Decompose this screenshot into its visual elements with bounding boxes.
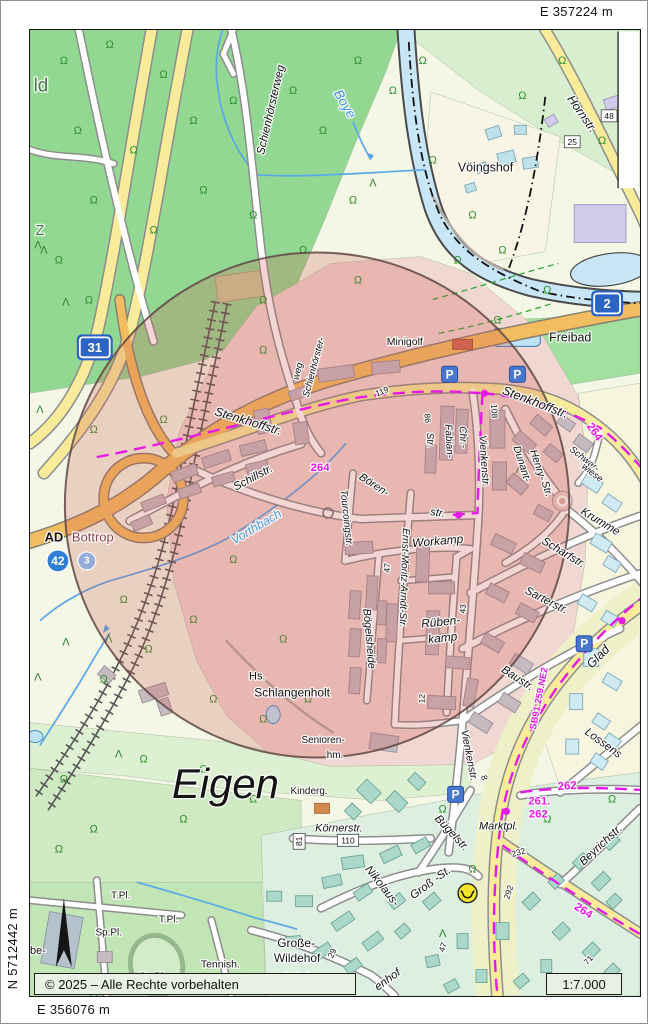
svg-text:261.: 261.	[528, 795, 550, 807]
svg-text:Minigolf: Minigolf	[387, 337, 423, 348]
map-label-minigolf: Minigolf	[387, 337, 423, 348]
map-label-12: 12	[416, 693, 426, 703]
building	[425, 954, 440, 967]
map-label-gro-e: Große-	[277, 936, 315, 950]
tree-symbol: Ω	[74, 125, 82, 137]
building	[566, 739, 579, 754]
building	[574, 205, 626, 243]
conifer-symbol: Λ	[62, 296, 70, 308]
tree-symbol: Ω	[55, 843, 63, 855]
svg-text:T.Pl.: T.Pl.	[159, 915, 178, 926]
map-canvas: ΩΩΩΩΩΩΩΩΩΩΩΩΩΩΩΩΩΩΩΩΩΩΩΩΩΩΩΩΩΩΩΩΩΩΩΩΩΩΩΩ…	[30, 30, 640, 996]
svg-text:P: P	[580, 637, 588, 651]
svg-text:42: 42	[51, 554, 65, 568]
tree-symbol: Ω	[149, 225, 157, 237]
scale-box: 1:7.000	[546, 973, 622, 995]
map-label-hm: hm.	[327, 750, 344, 761]
map-label-t-pl: T.Pl.	[111, 891, 130, 902]
tree-symbol: Ω	[189, 115, 197, 127]
tree-symbol: Ω	[389, 85, 397, 97]
map-label-wildehof: Wildehof	[274, 951, 321, 965]
building	[267, 891, 282, 901]
tree-symbol: Ω	[100, 674, 108, 686]
tree-symbol: Ω	[106, 39, 114, 51]
map-label-senioren: Senioren-	[301, 735, 344, 746]
building	[570, 694, 583, 710]
svg-text:262: 262	[529, 808, 548, 820]
building	[296, 896, 313, 907]
building	[496, 923, 509, 940]
svg-text:43: 43	[457, 604, 467, 614]
tree-symbol: Ω	[429, 155, 437, 167]
svg-text:hm.: hm.	[327, 750, 344, 761]
map-label-schlangenholt: Schlangenholt	[254, 686, 330, 700]
tree-symbol: Ω	[229, 95, 237, 107]
svg-text:AD: AD	[45, 529, 64, 544]
svg-text:2: 2	[604, 296, 611, 311]
map-label-k-rnerstr: Körnerstr.	[315, 822, 363, 834]
coordinate-top-easting: E 357224 m	[540, 4, 613, 19]
svg-text:31: 31	[88, 340, 102, 355]
map-label-be: be-	[30, 945, 46, 957]
tree-symbol: Ω	[453, 255, 461, 267]
svg-text:262: 262	[557, 780, 577, 793]
conifer-symbol: Λ	[439, 928, 447, 940]
map-label-str: Str.	[424, 432, 436, 448]
map-label-25: 25	[564, 136, 580, 148]
tree-symbol: Ω	[419, 55, 427, 67]
svg-text:Marktpl.: Marktpl.	[479, 820, 518, 832]
svg-text:108: 108	[489, 404, 500, 419]
map-label-262: 262	[557, 780, 577, 793]
tree-symbol: Ω	[319, 125, 327, 137]
svg-text:12: 12	[416, 693, 426, 703]
tree-symbol: Ω	[199, 185, 207, 197]
pond	[30, 731, 43, 743]
svg-text:Eigen: Eigen	[172, 760, 279, 807]
svg-text:Fabian-: Fabian-	[442, 424, 455, 459]
building	[457, 934, 468, 949]
building	[476, 970, 487, 983]
svg-text:Sp.Pl.: Sp.Pl.	[95, 928, 122, 939]
svg-text:P: P	[446, 367, 454, 381]
parking-icon: P	[442, 366, 458, 382]
svg-text:81: 81	[294, 836, 304, 846]
svg-text:48: 48	[604, 111, 614, 121]
coordinate-bottom-easting: E 356076 m	[37, 1002, 110, 1017]
svg-text:Wildehof: Wildehof	[274, 951, 321, 965]
tree-symbol: Ω	[498, 245, 506, 257]
svg-text:Tennish.: Tennish.	[201, 960, 240, 971]
tree-symbol: Ω	[468, 863, 476, 875]
svg-text:86: 86	[422, 413, 432, 423]
map-frame: ΩΩΩΩΩΩΩΩΩΩΩΩΩΩΩΩΩΩΩΩΩΩΩΩΩΩΩΩΩΩΩΩΩΩΩΩΩΩΩΩ…	[29, 29, 641, 997]
map-label-262: 262	[529, 808, 548, 820]
svg-text:Freibad: Freibad	[549, 330, 591, 344]
svg-text:T.Pl.: T.Pl.	[111, 891, 130, 902]
svg-text:str.: str.	[429, 506, 445, 520]
svg-text:Str.: Str.	[424, 432, 436, 448]
svg-text:3: 3	[84, 555, 90, 566]
parking-icon: P	[576, 636, 592, 652]
conifer-symbol: Λ	[34, 672, 42, 684]
map-label-freibad: Freibad	[549, 330, 591, 344]
svg-text:be-: be-	[30, 945, 46, 957]
tree-symbol: Ω	[249, 210, 257, 222]
conifer-symbol: Λ	[369, 178, 377, 190]
svg-text:Körnerstr.: Körnerstr.	[315, 822, 363, 834]
map-label-ld: ld	[34, 75, 49, 96]
svg-text:Senioren-: Senioren-	[301, 735, 344, 746]
map-label-z: Z	[35, 222, 44, 239]
svg-text:Bottrop: Bottrop	[72, 529, 114, 544]
svg-text:Chr.-: Chr.-	[457, 426, 469, 449]
map-label-str: str.	[429, 506, 445, 520]
map-label-hs: Hs.	[249, 671, 265, 683]
tree-symbol: Ω	[130, 145, 138, 157]
svg-text:Hs.: Hs.	[249, 671, 265, 683]
parking-icon: P	[509, 366, 525, 382]
svg-text:25: 25	[568, 137, 578, 147]
margin-strip	[618, 31, 639, 188]
map-label-86: 86	[422, 413, 432, 423]
post-office-icon	[458, 884, 477, 903]
shield-a31: 31	[77, 334, 113, 360]
map-label-261: 261.	[528, 795, 550, 807]
map-label-sp-pl: Sp.Pl.	[95, 928, 122, 939]
svg-text:P: P	[513, 367, 521, 381]
building	[541, 960, 552, 973]
map-label-43: 43	[457, 604, 467, 614]
tree-symbol: Ω	[608, 793, 616, 805]
svg-text:Kinderg.: Kinderg.	[291, 786, 328, 797]
map-label-bottrop: Bottrop	[72, 529, 114, 544]
coordinate-left-northing: N 5712442 m	[5, 908, 20, 989]
tree-symbol: Ω	[140, 753, 148, 765]
building	[97, 952, 112, 963]
map-label-47: 47	[382, 563, 392, 573]
building	[514, 125, 526, 134]
map-label-110: 110	[337, 834, 358, 846]
conifer-symbol: Λ	[36, 404, 44, 416]
map-page: E 357224 m N 5714304 m N 5712442 m E 356…	[0, 0, 648, 1024]
map-label-48: 48	[601, 110, 617, 122]
tree-symbol: Ω	[159, 69, 167, 81]
tree-symbol: Ω	[349, 195, 357, 207]
scale-text: 1:7.000	[562, 977, 605, 992]
map-label-kinderg: Kinderg.	[291, 786, 328, 797]
conifer-symbol: Λ	[62, 637, 70, 649]
svg-text:264: 264	[311, 462, 331, 474]
svg-text:Schlangenholt: Schlangenholt	[254, 686, 330, 700]
map-label-264: 264	[311, 462, 331, 474]
shield-a2: 2	[591, 290, 623, 316]
svg-text:P: P	[452, 787, 460, 801]
map-label-tennish: Tennish.	[201, 960, 240, 971]
tree-symbol: Ω	[518, 90, 526, 102]
tree-symbol: Ω	[55, 255, 63, 267]
badge-42: 42	[47, 550, 69, 572]
bus-stop-dot	[455, 511, 462, 518]
svg-text:Vöingshof: Vöingshof	[458, 161, 514, 175]
map-label-t-pl: T.Pl.	[159, 915, 178, 926]
map-label-fabian: Fabian-	[442, 424, 455, 459]
map-label-marktpl: Marktpl.	[479, 820, 518, 832]
copyright-box: © 2025 – Alle Rechte vorbehalten	[34, 973, 356, 995]
tree-symbol: Ω	[289, 85, 297, 97]
tree-symbol: Ω	[60, 55, 68, 67]
conifer-symbol: Λ	[115, 748, 123, 760]
bus-stop-dot	[481, 390, 488, 397]
tree-symbol: Ω	[90, 195, 98, 207]
bus-stop-dot	[618, 617, 625, 624]
parking-icon: P	[448, 786, 464, 802]
svg-text:ld: ld	[34, 75, 49, 96]
map-label-108: 108	[489, 404, 500, 419]
map-label-v-ingshof: Vöingshof	[458, 161, 514, 175]
building	[341, 855, 364, 870]
map-label-81: 81	[293, 833, 305, 849]
bus-stop-dot	[503, 808, 510, 815]
tree-symbol: Ω	[598, 135, 606, 147]
tree-symbol: Ω	[354, 55, 362, 67]
tree-symbol: Ω	[179, 813, 187, 825]
svg-text:Große-: Große-	[277, 936, 315, 950]
building	[315, 803, 330, 813]
copyright-text: © 2025 – Alle Rechte vorbehalten	[45, 977, 239, 992]
map-label-ad: AD	[45, 529, 64, 544]
badge-3: 3	[78, 552, 96, 570]
svg-text:47: 47	[382, 563, 392, 573]
tree-symbol: Ω	[468, 210, 476, 222]
conifer-symbol: Λ	[34, 240, 42, 252]
svg-text:Z: Z	[35, 222, 44, 239]
road	[293, 838, 431, 840]
tree-symbol: Ω	[558, 55, 566, 67]
svg-text:110: 110	[341, 835, 355, 845]
map-label-chr: Chr.-	[457, 426, 469, 449]
radius-overlay-circle	[65, 253, 569, 758]
map-label-eigen: Eigen	[172, 760, 279, 807]
tree-symbol: Ω	[90, 823, 98, 835]
tree-symbol: Ω	[543, 284, 551, 296]
tree-symbol: Ω	[85, 294, 93, 306]
tree-symbol: Ω	[60, 773, 68, 785]
